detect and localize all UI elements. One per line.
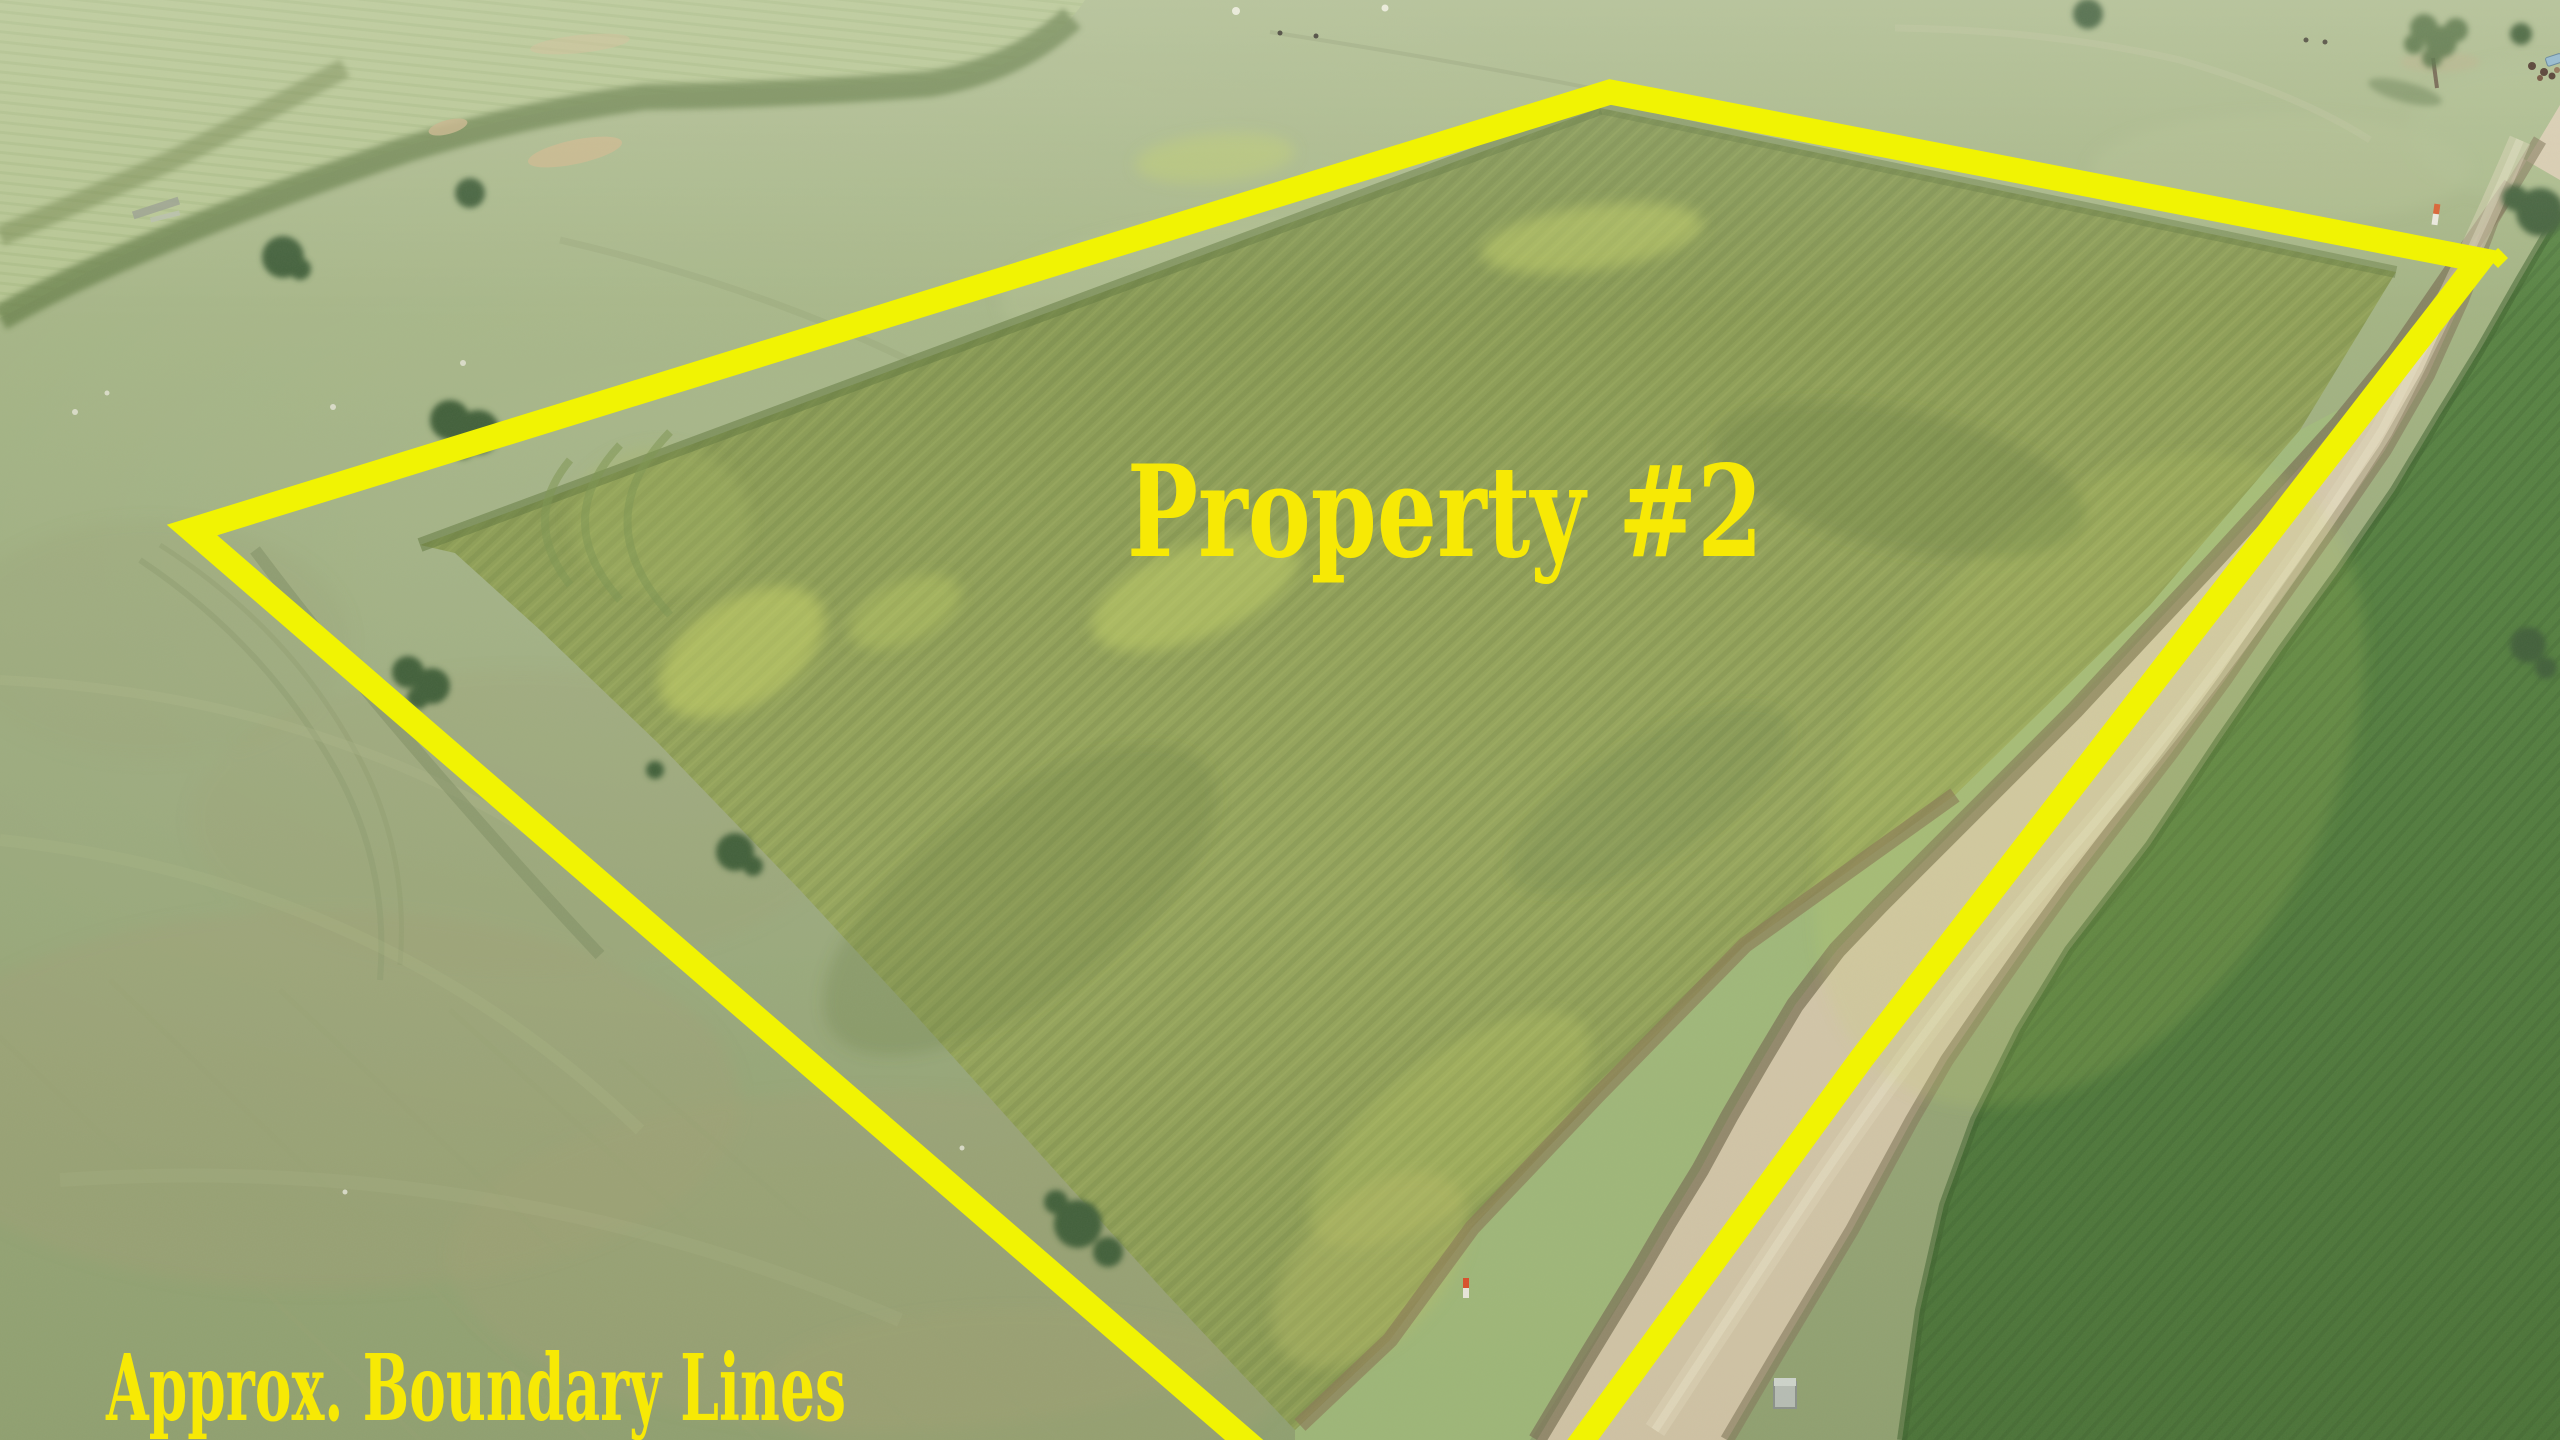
aerial-property-photo: Property #2 Approx. Boundary Lines <box>0 0 2560 1440</box>
property-label: Property #2 <box>1127 438 1763 586</box>
grain-overlay <box>0 0 2560 1440</box>
scene-svg: Property #2 Approx. Boundary Lines <box>0 0 2560 1440</box>
boundary-caption: Approx. Boundary Lines <box>105 1334 846 1440</box>
